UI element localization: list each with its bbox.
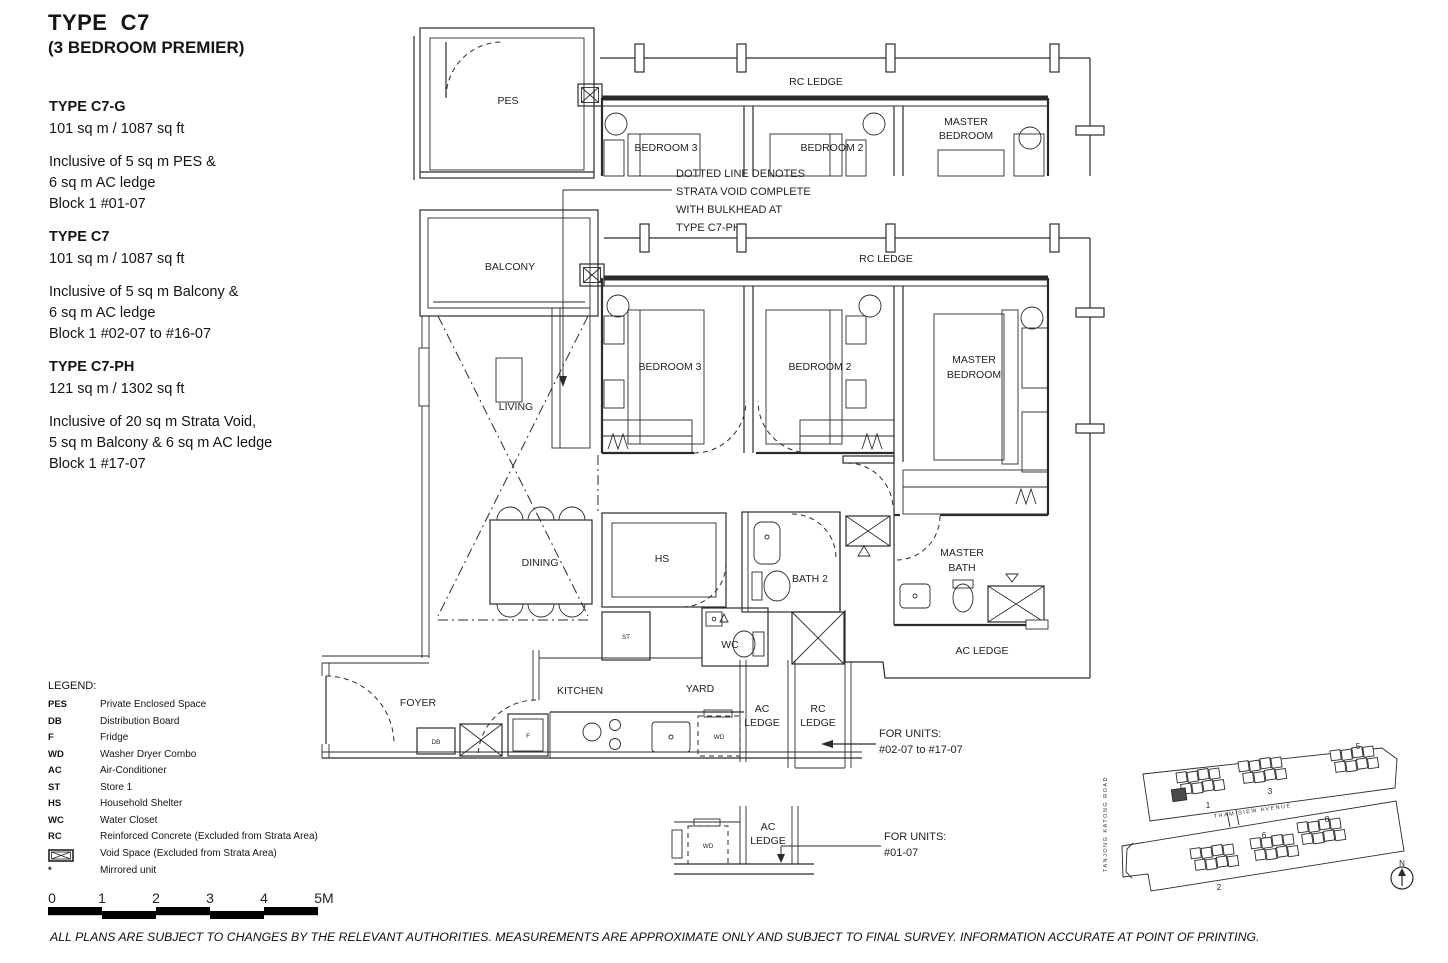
bath2 xyxy=(742,512,840,612)
callout-arrowhead xyxy=(777,854,785,863)
master-suite-door-arc xyxy=(847,463,893,509)
master-bedroom-label-1: MASTER xyxy=(952,354,996,366)
sink xyxy=(652,722,690,752)
site-block-cluster-1 xyxy=(1169,767,1225,802)
wardrobe-mark xyxy=(1016,489,1036,504)
wardrobe xyxy=(800,420,894,453)
living-label: LIVING xyxy=(499,401,533,413)
site-block-cluster-5 xyxy=(1330,745,1379,774)
chairs-top xyxy=(497,507,585,520)
scale-tick: 1 xyxy=(98,890,106,906)
north-label: N xyxy=(1399,859,1405,868)
block-number-6: 6 xyxy=(1262,831,1267,840)
void-space-symbol-yard xyxy=(792,612,844,664)
marker-triangle xyxy=(858,546,870,556)
hs-door-arc xyxy=(682,563,726,607)
floor-plan-drawing: PES RC LEDGE xyxy=(0,0,1448,963)
units-callout-b: FOR UNITS: #01-07 xyxy=(777,831,946,863)
ac-ledge-bottom-label-1: AC xyxy=(755,703,770,715)
upper-rc-ledge-label: RC LEDGE xyxy=(789,76,843,88)
callout-line: #02-07 to #17-07 xyxy=(879,744,963,756)
scale-bar: 0 1 2 3 4 5M xyxy=(48,890,334,919)
void-space-symbol-upper xyxy=(578,84,602,106)
master-bath-label-1: MASTER xyxy=(940,547,984,559)
callout-line: #01-07 xyxy=(884,847,918,859)
north-arrow: N xyxy=(1391,859,1413,889)
master-bedroom-label-2: BEDROOM xyxy=(947,369,1001,381)
wardrobe xyxy=(1022,328,1048,388)
bath2-label: BATH 2 xyxy=(792,573,828,585)
master-bath-label-2: BATH xyxy=(948,562,975,574)
chairs-bottom xyxy=(497,604,585,617)
bedroom3-door-arc xyxy=(694,401,746,453)
hob xyxy=(583,720,621,750)
ground-floor-detail: WD AC LEDGE FOR UNITS: #01-07 xyxy=(672,806,946,874)
upper-master-label-1: MASTER xyxy=(944,116,988,128)
rc-ledge-bottom-label-1: RC xyxy=(810,703,826,715)
wd-label: WD xyxy=(714,734,725,741)
bed xyxy=(766,310,842,444)
site-block-cluster-2 xyxy=(1190,843,1239,872)
bed xyxy=(934,314,1004,460)
marker-triangle xyxy=(720,614,728,622)
floorplan-brochure-page: TYPE C7 (3 BEDROOM PREMIER) TYPE C7-G 10… xyxy=(0,0,1448,963)
ac-ledge-right xyxy=(845,610,1090,678)
upper-master-label-2: BEDROOM xyxy=(939,130,993,142)
block-number-2: 2 xyxy=(1217,883,1222,892)
site-block-cluster-6 xyxy=(1250,833,1299,862)
upper-bedroom3-label: BEDROOM 3 xyxy=(634,142,697,154)
scale-tick: 5M xyxy=(314,890,333,906)
site-block-cluster-8 xyxy=(1297,817,1346,846)
scale-tick: 3 xyxy=(206,890,214,906)
scale-tick: 0 xyxy=(48,890,56,906)
low-cabinet xyxy=(903,470,1048,514)
wd-label-detail: WD xyxy=(703,843,714,850)
shower-void-column xyxy=(840,512,890,610)
kitchen-label: KITCHEN xyxy=(557,685,603,697)
hs-label: HS xyxy=(655,553,670,565)
foyer-label: FOYER xyxy=(400,697,437,709)
store-label: ST xyxy=(622,634,630,641)
dining-label: DINING xyxy=(522,557,559,569)
callout-line: FOR UNITS: xyxy=(884,831,946,843)
shower-triangle xyxy=(1006,574,1018,582)
yard-label: YARD xyxy=(686,683,715,695)
note-line: DOTTED LINE DENOTES xyxy=(676,168,805,180)
bedroom2 xyxy=(756,295,894,453)
entrance-door-arc xyxy=(326,676,394,744)
block-number-5: 5 xyxy=(1356,742,1361,751)
upper-bedroom2-label: BEDROOM 2 xyxy=(800,142,863,154)
db-label: DB xyxy=(432,739,441,746)
void-space-symbol-master-bath xyxy=(988,586,1044,622)
master-bath-door-arc xyxy=(896,516,940,560)
road-label-vertical: TANJONG KATONG ROAD xyxy=(1103,776,1109,872)
note-line: STRATA VOID COMPLETE xyxy=(676,186,811,198)
ac-ledge-right-label: AC LEDGE xyxy=(955,645,1008,657)
wc-label: WC xyxy=(721,639,739,651)
wc-sink xyxy=(706,612,722,626)
foyer-kitchen-partition xyxy=(326,650,702,756)
site-block-cluster-3 xyxy=(1238,756,1287,785)
wardrobe xyxy=(602,420,692,453)
sofa xyxy=(552,308,590,448)
main-rc-ledge-label: RC LEDGE xyxy=(859,253,913,265)
living-window xyxy=(419,348,429,406)
pes-door-arc xyxy=(446,42,502,98)
wardrobe xyxy=(1022,412,1048,472)
bedroom3-label: BEDROOM 3 xyxy=(638,361,701,373)
bath2-door-arc xyxy=(792,514,836,558)
living-room xyxy=(496,308,590,448)
ac-ledge-bottom-label-2: LEDGE xyxy=(744,717,780,729)
bedroom3 xyxy=(602,295,746,453)
ac-ledge-detail-label-1: AC xyxy=(761,821,776,833)
bath2-sink xyxy=(754,522,780,564)
rc-ledge-bottom-label-2: LEDGE xyxy=(800,717,836,729)
bed xyxy=(628,310,704,444)
callout-line: FOR UNITS: xyxy=(879,728,941,740)
road-edge xyxy=(1126,843,1133,878)
note-line: TYPE C7-PH xyxy=(676,222,741,234)
pes-label: PES xyxy=(497,95,518,107)
kitchen-door-arc xyxy=(478,700,536,756)
site-plan: TANJONG KATONG ROAD THAM SIEW AVENUE xyxy=(1103,742,1413,892)
bedroom2-label: BEDROOM 2 xyxy=(788,361,851,373)
upper-partial-plan: PES RC LEDGE xyxy=(414,28,1104,180)
block-number-8: 8 xyxy=(1325,815,1330,824)
highlighted-unit xyxy=(1171,788,1187,802)
block-number-1: 1 xyxy=(1206,801,1211,810)
bath2-toilet xyxy=(764,571,790,601)
upper-rc-ledge xyxy=(600,44,1104,176)
ac-ledge-detail-label-2: LEDGE xyxy=(750,835,786,847)
void-space-symbol-main xyxy=(580,264,604,286)
master-bath-sink xyxy=(900,584,930,608)
strata-void-dashed-lines xyxy=(438,316,598,620)
road-label-avenue: THAM SIEW AVENUE xyxy=(1213,803,1292,820)
block-number-3: 3 xyxy=(1268,787,1273,796)
wc-room xyxy=(702,608,768,666)
main-floor-plan: BALCONY RC LEDGE xyxy=(322,210,1104,768)
void-space-symbol-kitchen xyxy=(460,724,502,756)
balcony-label: BALCONY xyxy=(485,261,535,273)
callout-arrowhead xyxy=(821,740,833,748)
master-bedroom xyxy=(843,307,1048,514)
scale-tick: 2 xyxy=(152,890,160,906)
tv-console xyxy=(496,358,522,402)
scale-tick: 4 xyxy=(260,890,268,906)
fridge-label: F xyxy=(526,733,530,740)
kitchen-counter xyxy=(417,710,744,758)
note-line: WITH BULKHEAD AT xyxy=(676,204,782,216)
